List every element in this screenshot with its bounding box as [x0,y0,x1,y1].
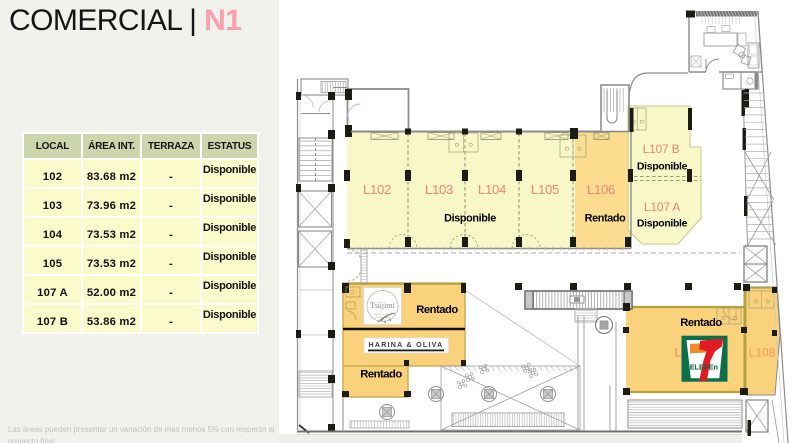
svg-text:Rentado: Rentado [360,369,402,381]
svg-text:Rentado: Rentado [416,304,458,316]
svg-text:L106: L106 [587,182,615,197]
svg-text:L107 B: L107 B [643,142,680,156]
svg-text:ELEVEn: ELEVEn [690,362,719,371]
svg-text:L: L [675,346,682,360]
svg-text:HARINA & OLIVA: HARINA & OLIVA [369,342,444,349]
svg-text:Tsûjimi: Tsûjimi [370,301,396,310]
svg-text:Disponible: Disponible [637,161,688,173]
svg-text:L103: L103 [425,182,453,197]
svg-text:L108: L108 [749,346,776,360]
svg-text:Rentado: Rentado [585,213,626,225]
svg-text:L102: L102 [363,182,391,197]
svg-text:Disponible: Disponible [637,218,688,230]
svg-text:Rentado: Rentado [680,317,722,329]
svg-text:L104: L104 [478,182,506,197]
svg-text:Disponible: Disponible [444,213,496,225]
svg-text:L105: L105 [531,182,559,197]
svg-text:L107 A: L107 A [644,200,680,214]
